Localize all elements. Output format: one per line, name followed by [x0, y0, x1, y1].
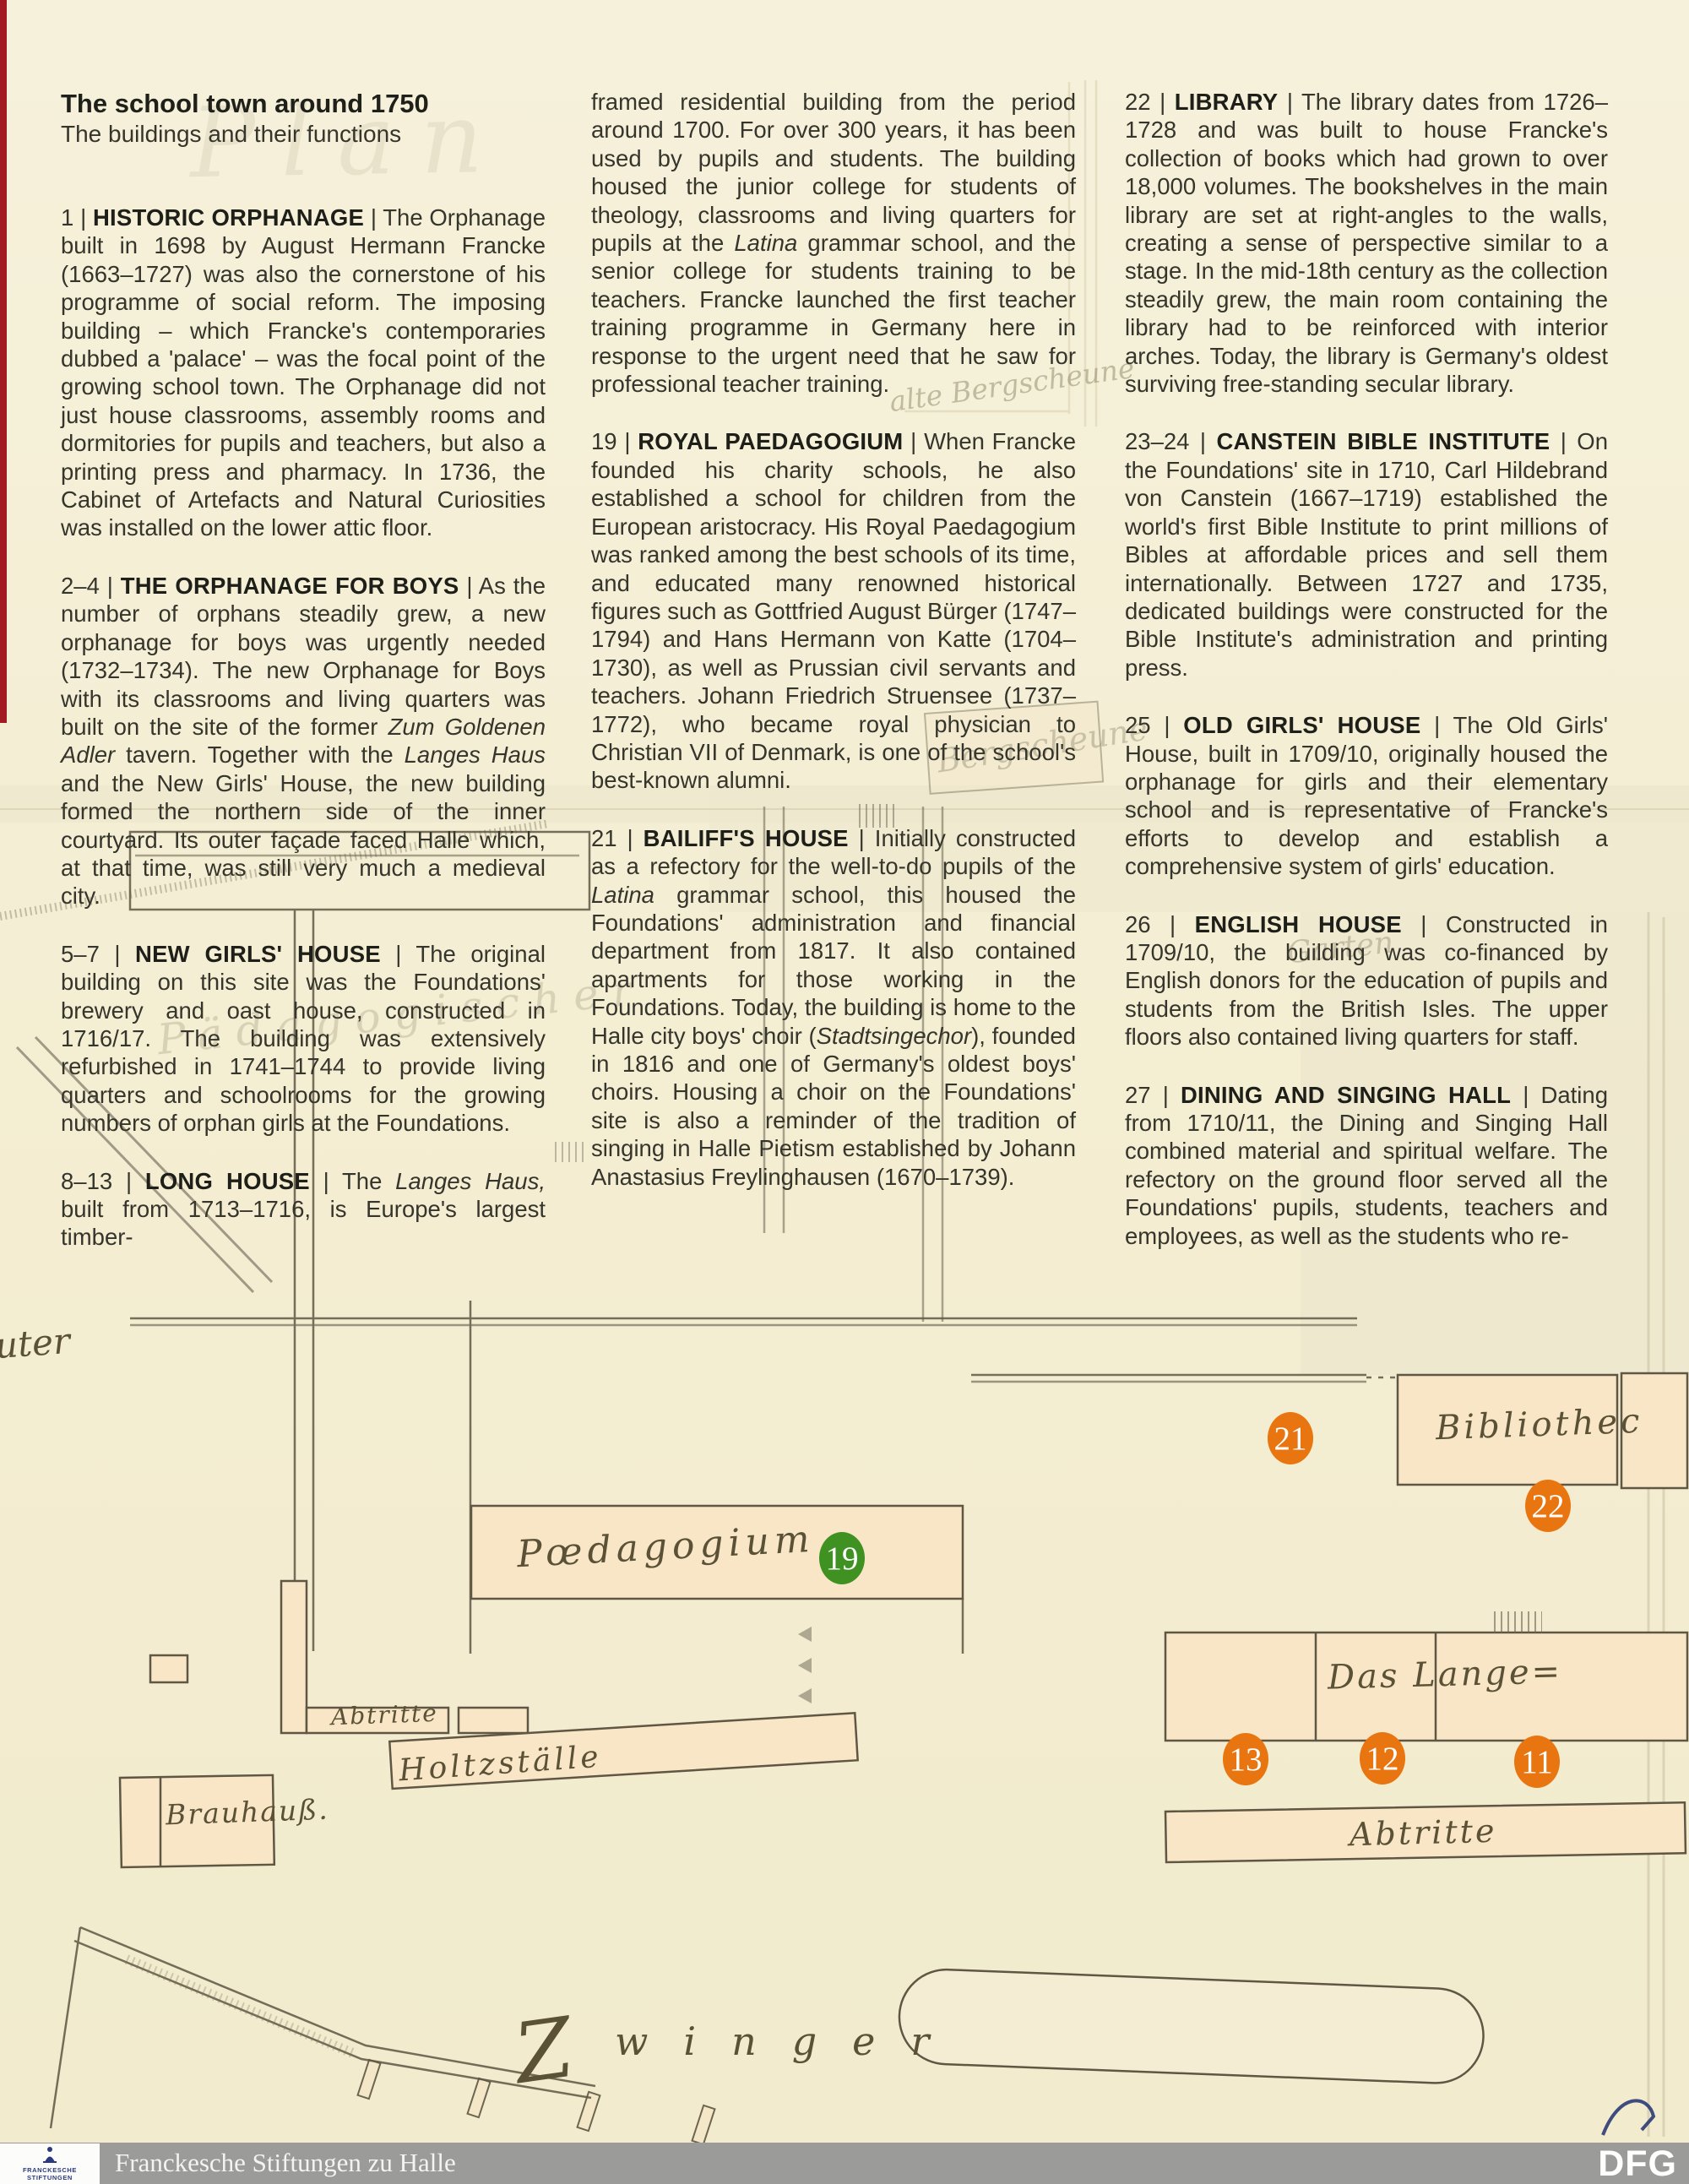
text-section: 2–4 | THE ORPHANAGE FOR BOYS | As the nu…	[61, 572, 546, 910]
section-text: 26 |	[1125, 911, 1195, 937]
section-title: NEW GIRLS' HOUSE	[135, 941, 381, 967]
section-text: | When Francke founded his charity schoo…	[591, 428, 1076, 793]
map-marker-13[interactable]: 13	[1223, 1733, 1268, 1785]
section-title: ENGLISH HOUSE	[1195, 911, 1402, 937]
map-marker-12[interactable]: 12	[1360, 1732, 1405, 1785]
section-text: 2–4 |	[61, 573, 121, 599]
section-title: THE ORPHANAGE FOR BOYS	[121, 573, 459, 599]
text-section: 5–7 | NEW GIRLS' HOUSE | The original bu…	[61, 940, 546, 1138]
section-text: Langes Haus	[405, 742, 546, 768]
section-text: Latina	[591, 882, 654, 908]
section-text: built from 1713–1716, is Europe's larges…	[61, 1196, 546, 1250]
section-text: 5–7 |	[61, 941, 135, 967]
map-label-das-lange: Das Lange=	[1327, 1652, 1562, 1697]
section-text: 22 |	[1125, 89, 1175, 115]
map-marker-11[interactable]: 11	[1514, 1736, 1560, 1788]
text-section: 23–24 | CANSTEIN BIBLE INSTITUTE | On th…	[1125, 427, 1608, 682]
section-text: Stadtsingechor	[817, 1023, 971, 1049]
section-text: 8–13 |	[61, 1168, 145, 1194]
section-text: 27 |	[1125, 1082, 1181, 1108]
section-text: Latina	[734, 230, 797, 256]
text-section: 19 | ROYAL PAEDAGOGIUM | When Francke fo…	[591, 427, 1076, 794]
section-text: | On the Foundations' site in 1710, Carl…	[1125, 428, 1608, 680]
section-title: CANSTEIN BIBLE INSTITUTE	[1216, 428, 1550, 454]
page-header: The school town around 1750 The building…	[61, 88, 546, 149]
map-label-abtritte-left: Abtritte	[330, 1699, 438, 1730]
franckesche-stiftungen-logo: FRANCKESCHE STIFTUNGEN	[0, 2143, 100, 2184]
section-title: DINING AND SINGING HALL	[1181, 1082, 1511, 1108]
map-marker-19[interactable]: 19	[819, 1532, 865, 1584]
text-section: 21 | BAILIFF'S HOUSE | Initially constru…	[591, 824, 1076, 1191]
text-section: 22 | LIBRARY | The library dates from 17…	[1125, 88, 1608, 398]
page-subtitle: The buildings and their functions	[61, 119, 546, 149]
text-section: 26 | ENGLISH HOUSE | Constructed in 1709…	[1125, 910, 1608, 1051]
logo-text-line1: FRANCKESCHE	[23, 2166, 77, 2174]
section-text: 19 |	[591, 428, 638, 454]
dfg-logo: DFG	[1598, 2143, 1677, 2184]
map-label-edge-fragment: uter	[0, 1320, 71, 1366]
map-label-abtritte-right: Abtritte	[1349, 1812, 1496, 1854]
section-title: BAILIFF'S HOUSE	[644, 825, 849, 851]
section-title: LONG HOUSE	[145, 1168, 310, 1194]
text-section: 27 | DINING AND SINGING HALL | Dating fr…	[1125, 1081, 1608, 1250]
organization-name: Franckesche Stiftungen zu Halle	[115, 2148, 456, 2178]
section-text: 25 |	[1125, 712, 1183, 738]
text-section: framed residential building from the per…	[591, 88, 1076, 398]
section-text: 21 |	[591, 825, 644, 851]
text-column-1: The school town around 1750 The building…	[61, 88, 546, 1281]
footer-bar: FRANCKESCHE STIFTUNGEN Franckesche Stift…	[0, 2143, 1689, 2184]
text-column-3: 22 | LIBRARY | The library dates from 17…	[1125, 88, 1608, 1279]
map-label-zwinger: winger	[615, 2018, 964, 2064]
text-section: 8–13 | LONG HOUSE | The Langes Haus, bui…	[61, 1167, 546, 1252]
page-title: The school town around 1750	[61, 88, 546, 119]
section-title: OLD GIRLS' HOUSE	[1183, 712, 1420, 738]
section-text: | The	[310, 1168, 395, 1194]
map-label-bibliothec: Bibliothec	[1435, 1402, 1643, 1448]
section-text: 23–24 |	[1125, 428, 1216, 454]
scanned-brochure-page: Plan alte Bergscheune Bergscheune Pädago…	[0, 0, 1689, 2184]
section-text: | The original building on this site was…	[61, 941, 546, 1136]
francke-statue-icon	[41, 2146, 59, 2166]
text-section: 1 | HISTORIC ORPHANAGE | The Orphanage b…	[61, 204, 546, 542]
section-title: LIBRARY	[1175, 89, 1279, 115]
map-label-brauhauss: Brauhauß.	[165, 1793, 329, 1832]
logo-text-line2: STIFTUNGEN	[27, 2174, 73, 2181]
section-title: HISTORIC ORPHANAGE	[93, 204, 364, 231]
text-section: 25 | OLD GIRLS' HOUSE | The Old Girls' H…	[1125, 711, 1608, 880]
map-marker-21[interactable]: 21	[1268, 1412, 1313, 1464]
section-text: | The library dates from 1726–1728 and w…	[1125, 89, 1608, 397]
section-text: 1 |	[61, 204, 93, 231]
text-column-2: framed residential building from the per…	[591, 88, 1076, 1220]
section-text: | The Orphanage built in 1698 by August …	[61, 204, 546, 541]
section-text: and the New Girls' House, the new buildi…	[61, 770, 546, 910]
section-text: Langes Haus,	[395, 1168, 546, 1194]
map-marker-22[interactable]: 22	[1525, 1480, 1571, 1532]
page-edge-strip	[0, 0, 7, 723]
section-title: ROYAL PAEDAGOGIUM	[638, 428, 903, 454]
section-text: tavern. Together with the	[115, 742, 404, 768]
